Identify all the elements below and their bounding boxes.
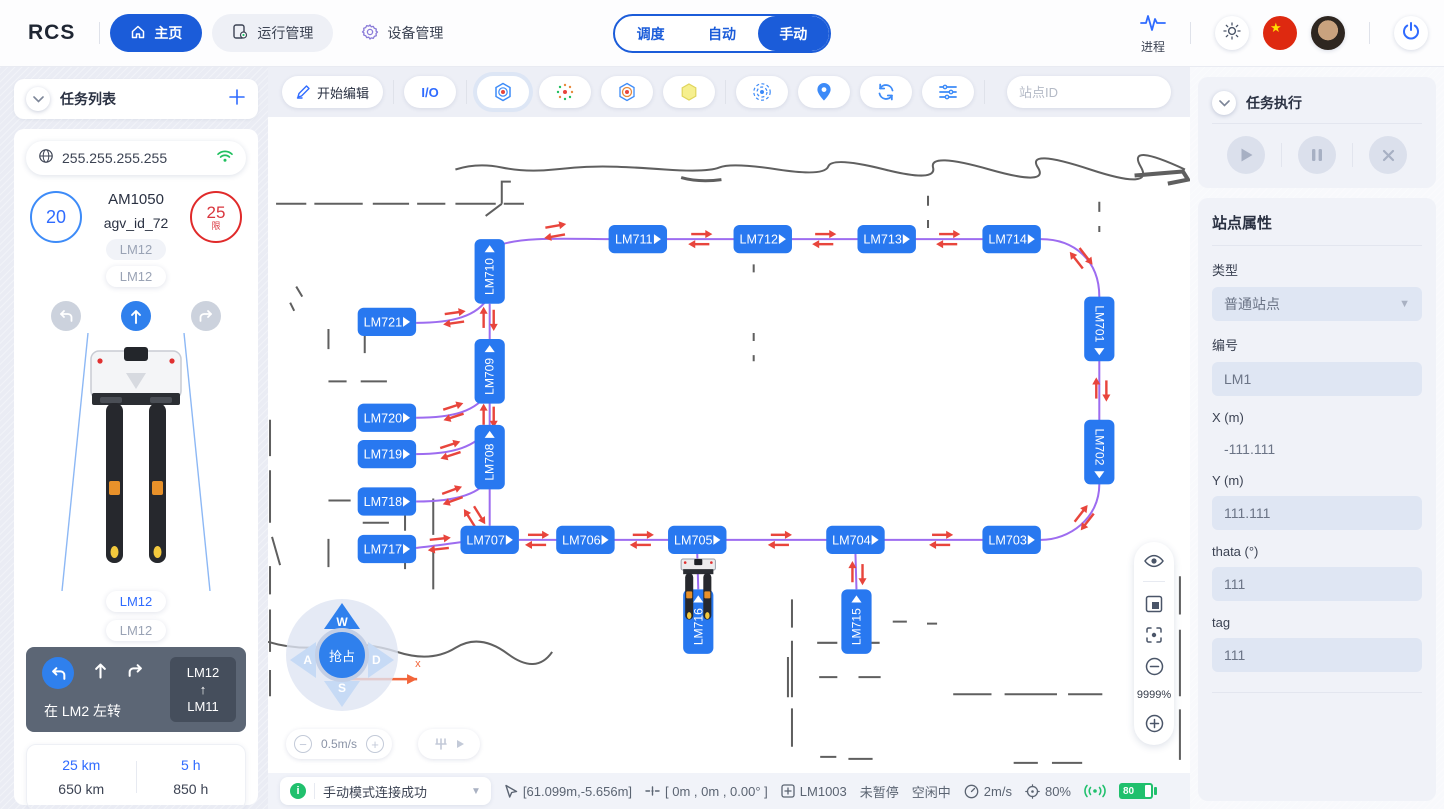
- speed-limit-gauge: 25 限: [190, 191, 242, 243]
- svg-text:LM721: LM721: [364, 315, 402, 329]
- path-direction-arrow-pair: [1067, 243, 1096, 273]
- svg-text:LM709: LM709: [483, 358, 497, 395]
- station-id-input[interactable]: LM1: [1212, 362, 1422, 396]
- field-label-y: Y (m): [1212, 473, 1422, 488]
- path-direction-arrow-pair: [441, 307, 467, 328]
- battery-indicator: 80: [1119, 783, 1153, 799]
- brand-logo: RCS: [28, 21, 75, 45]
- svg-text:LM719: LM719: [364, 448, 402, 462]
- locate-button[interactable]: [798, 76, 850, 108]
- map-station-node[interactable]: LM715: [841, 589, 871, 654]
- svg-text:LM711: LM711: [615, 233, 653, 247]
- station-theta-input[interactable]: 111: [1212, 567, 1422, 601]
- process-label: 进程: [1141, 38, 1165, 55]
- lidar-view-button[interactable]: [736, 76, 788, 108]
- plus-square-icon: [781, 784, 795, 798]
- station-nodes: LM710LM711LM712LM713LM714LM721LM709LM720…: [358, 225, 1115, 654]
- center-target-button[interactable]: [1145, 626, 1163, 644]
- connection-message[interactable]: i 手动模式连接成功 ▼: [280, 777, 491, 805]
- svg-text:LM704: LM704: [832, 533, 870, 547]
- svg-text:LM717: LM717: [364, 542, 402, 556]
- task-sidebar: 任务列表 255.255.255.255 20 AM1050 agv_id_72: [0, 67, 268, 809]
- map-station-node[interactable]: LM710: [475, 239, 505, 304]
- field-label-x: X (m): [1212, 410, 1422, 425]
- map-station-node[interactable]: LM709: [475, 339, 505, 404]
- speedometer-icon: [964, 784, 979, 799]
- svg-text:LM706: LM706: [562, 533, 600, 547]
- chevron-down-icon[interactable]: [1212, 91, 1236, 115]
- io-button[interactable]: I/O: [404, 76, 456, 108]
- map-toolbar: 开始编辑 I/O: [268, 67, 1190, 117]
- path-direction-arrow-pair: [848, 561, 866, 585]
- signal-icon: [1084, 784, 1106, 798]
- total-distance: 650 km: [27, 781, 136, 797]
- localization-quality: 80%: [1025, 784, 1071, 799]
- robot-pose: [ 0m , 0m , 0.00° ]: [645, 784, 768, 799]
- route-segment: LM12 ↑ LM11: [170, 657, 236, 722]
- task-execution-title: 任务执行: [1246, 93, 1302, 113]
- trip-distance: 25 km: [27, 757, 136, 773]
- path-direction-arrow-pair: [436, 438, 465, 463]
- power-icon: [1401, 21, 1421, 46]
- speed-gauge: 20: [30, 191, 82, 243]
- odometer-card: 25 km 650 km 5 h 850 h: [26, 744, 246, 809]
- map-station-node[interactable]: LM719: [358, 440, 416, 468]
- mode-auto[interactable]: 自动: [686, 16, 757, 51]
- home-icon: [130, 24, 146, 43]
- map-station-node[interactable]: LM712: [734, 225, 792, 253]
- svg-text:LM718: LM718: [364, 495, 402, 509]
- connection-message-text: 手动模式连接成功: [323, 782, 463, 801]
- layer-zones-button[interactable]: [601, 76, 653, 108]
- star-icon: ★: [1270, 20, 1282, 36]
- station-properties-title: 站点属性: [1212, 212, 1422, 233]
- map-station-node[interactable]: LM705: [668, 526, 726, 554]
- nav-item-label: 主页: [154, 23, 182, 43]
- signal-indicator: [1084, 784, 1106, 798]
- process-button[interactable]: 进程: [1140, 12, 1166, 55]
- pencil-icon: [296, 85, 310, 99]
- joystick-up-key[interactable]: W: [324, 603, 360, 629]
- station-x-value: -111.111: [1212, 433, 1422, 459]
- language-flag-button[interactable]: ★: [1263, 16, 1297, 50]
- task-list-header: 任务列表: [14, 79, 258, 119]
- agv-id: agv_id_72: [104, 215, 169, 231]
- pointer-icon: [504, 784, 518, 798]
- hexagon-rings-icon: [616, 81, 638, 103]
- task-pause-button[interactable]: [1298, 136, 1336, 174]
- station-chip: LM12: [106, 620, 167, 641]
- sun-icon: [1223, 22, 1241, 45]
- turn-right-button[interactable]: [191, 301, 221, 331]
- map-view-palette: 9999%: [1134, 542, 1174, 745]
- play-icon: [1239, 147, 1254, 163]
- go-straight-button[interactable]: [121, 301, 151, 331]
- joystick-right-key[interactable]: D: [368, 642, 394, 678]
- map-station-node[interactable]: LM702: [1084, 420, 1114, 485]
- svg-text:LM703: LM703: [988, 533, 1026, 547]
- crosshair-icon: [645, 784, 660, 798]
- map-station-node[interactable]: LM706: [556, 526, 614, 554]
- map-station-node[interactable]: LM720: [358, 404, 416, 432]
- waveform-icon: [1140, 12, 1166, 37]
- theme-toggle-button[interactable]: [1215, 16, 1249, 50]
- divider: [1190, 22, 1191, 44]
- manual-speed-stepper: − 0.5m/s +: [286, 729, 392, 759]
- agv-ip-row[interactable]: 255.255.255.255: [26, 141, 246, 175]
- svg-text:LM715: LM715: [850, 608, 864, 645]
- straight-icon[interactable]: [94, 662, 107, 684]
- map-station-node[interactable]: LM721: [358, 308, 416, 336]
- agv-meta: AM1050 agv_id_72 LM12: [104, 191, 169, 260]
- path-direction-arrow-pair: [1092, 377, 1110, 401]
- visibility-button[interactable]: [1144, 554, 1164, 568]
- task-play-button[interactable]: [1227, 136, 1265, 174]
- x-axis-label: x: [415, 658, 421, 670]
- map-station-node[interactable]: LM703: [982, 526, 1040, 554]
- station-properties-panel: 站点属性 类型 普通站点 ▼ 编号 LM1 X (m) -111.111 Y (…: [1198, 198, 1436, 801]
- map-station-node[interactable]: LM718: [358, 487, 416, 515]
- pause-state: 未暂停: [860, 782, 899, 801]
- map-station-node[interactable]: LM711: [609, 225, 667, 253]
- direction-buttons: [26, 301, 246, 331]
- svg-text:LM705: LM705: [674, 533, 712, 547]
- current-station-chip: LM12: [106, 591, 167, 612]
- agv-card: 255.255.255.255 20 AM1050 agv_id_72 LM12…: [14, 129, 258, 805]
- map-station-node[interactable]: LM714: [982, 225, 1040, 253]
- field-label-tag: tag: [1212, 615, 1422, 630]
- monitor-gear-icon: [232, 23, 249, 43]
- forklift-view: [26, 333, 246, 591]
- nav-item-label: 设备管理: [387, 23, 443, 43]
- play-icon: [456, 739, 465, 749]
- agv-ip-address: 255.255.255.255: [62, 150, 208, 166]
- svg-text:LM701: LM701: [1092, 305, 1106, 342]
- user-avatar[interactable]: [1311, 16, 1345, 50]
- refresh-icon: [876, 83, 896, 101]
- yellow-hexagon-icon: [678, 81, 700, 103]
- info-icon: i: [290, 783, 306, 799]
- map-canvas[interactable]: LM710LM711LM712LM713LM714LM721LM709LM720…: [268, 117, 1190, 773]
- svg-text:LM714: LM714: [988, 233, 1026, 247]
- field-label-theta: thata (°): [1212, 544, 1422, 559]
- gear-icon: [361, 23, 379, 44]
- fork-icon: [434, 737, 448, 751]
- task-list-title: 任务列表: [60, 89, 116, 109]
- map-station-node[interactable]: LM707: [460, 526, 518, 554]
- mode-manual[interactable]: 手动: [758, 16, 829, 51]
- station-search-input[interactable]: [1019, 85, 1195, 100]
- field-label-type: 类型: [1212, 260, 1422, 279]
- speed-decrease-button[interactable]: −: [294, 735, 312, 753]
- turn-left-button[interactable]: [51, 301, 81, 331]
- task-cancel-button[interactable]: [1369, 136, 1407, 174]
- right-sidebar: 任务执行 站点属性 类型 普通站点: [1190, 67, 1444, 809]
- mode-dispatch[interactable]: 调度: [615, 16, 686, 51]
- scatter-points-icon: [554, 81, 576, 103]
- close-icon: [1382, 149, 1395, 162]
- station-tag-input[interactable]: 111: [1212, 638, 1422, 672]
- chevron-down-icon[interactable]: ▼: [471, 786, 481, 797]
- power-button[interactable]: [1394, 16, 1428, 50]
- idle-state: 空闲中: [912, 782, 951, 801]
- station-chip: LM12: [106, 266, 167, 287]
- map-station-node[interactable]: LM704: [826, 526, 884, 554]
- trip-hours: 5 h: [137, 757, 246, 773]
- nav-item-operations[interactable]: 运行管理: [212, 14, 333, 52]
- station-type-select[interactable]: 普通站点 ▼: [1212, 287, 1422, 321]
- map-station-node[interactable]: LM717: [358, 535, 416, 563]
- layer-points-button[interactable]: [539, 76, 591, 108]
- pause-icon: [1311, 148, 1323, 162]
- field-label-id: 编号: [1212, 335, 1422, 354]
- hexagon-node-icon: [492, 81, 514, 103]
- fit-view-button[interactable]: [1145, 595, 1163, 613]
- manual-speed-value: 0.5m/s: [321, 737, 357, 751]
- agv-model: AM1050: [104, 191, 169, 208]
- add-task-button[interactable]: [228, 87, 246, 111]
- status-bar: i 手动模式连接成功 ▼ [61.099m,-5.656m] [ 0m , 0m…: [268, 773, 1190, 809]
- chevron-down-icon[interactable]: [26, 87, 50, 111]
- slam-map: LM710LM711LM712LM713LM714LM721LM709LM720…: [268, 117, 1190, 773]
- globe-icon: [38, 148, 54, 169]
- location-pin-icon: [815, 82, 833, 102]
- svg-text:LM712: LM712: [739, 233, 777, 247]
- map-station-node[interactable]: LM708: [475, 425, 505, 490]
- nav-instruction: 在 LM2 左转: [38, 701, 162, 721]
- zoom-out-button[interactable]: [1145, 657, 1164, 676]
- speed-readout: 2m/s: [964, 784, 1012, 799]
- radar-icon: [751, 81, 773, 103]
- cursor-coords: [61.099m,-5.656m]: [504, 784, 632, 799]
- mode-switcher: 调度 自动 手动: [613, 14, 831, 53]
- svg-text:LM720: LM720: [364, 411, 402, 425]
- svg-text:LM708: LM708: [483, 443, 497, 480]
- svg-text:LM707: LM707: [466, 533, 504, 547]
- forklift-image: [26, 333, 246, 591]
- current-station: LM1003: [781, 784, 847, 799]
- top-navbar: RCS 主页 运行管理 设备管理 调度 自动 手动 进程: [0, 0, 1444, 67]
- divider: [99, 22, 100, 44]
- joystick-down-key[interactable]: S: [324, 681, 360, 707]
- turn-left-active-button[interactable]: [42, 657, 74, 689]
- wifi-icon: [216, 149, 234, 168]
- station-search: [1007, 76, 1171, 108]
- filters-button[interactable]: [922, 76, 974, 108]
- layer-areas-button[interactable]: [663, 76, 715, 108]
- speed-increase-button[interactable]: +: [366, 735, 384, 753]
- station-chip: LM12: [106, 239, 167, 260]
- task-execution-panel: 任务执行: [1198, 77, 1436, 188]
- target-icon: [1025, 784, 1040, 799]
- chevron-down-icon: ▼: [1399, 298, 1410, 310]
- station-y-input[interactable]: 111.111: [1212, 496, 1422, 530]
- joystick-left-key[interactable]: A: [290, 642, 316, 678]
- map-station-node[interactable]: LM713: [857, 225, 915, 253]
- agv-gauges: 20 AM1050 agv_id_72 LM12 25 限: [26, 191, 246, 260]
- divider: [1369, 22, 1370, 44]
- fork-action-button[interactable]: [418, 729, 480, 759]
- start-edit-button[interactable]: 开始编辑: [282, 76, 383, 108]
- svg-text:LM710: LM710: [483, 258, 497, 295]
- map-station-node[interactable]: LM701: [1084, 297, 1114, 362]
- nav-item-home[interactable]: 主页: [110, 14, 202, 52]
- zoom-percent: 9999%: [1137, 689, 1171, 701]
- seize-control-button[interactable]: 抢占: [315, 628, 369, 682]
- zoom-in-button[interactable]: [1145, 714, 1164, 733]
- nav-item-label: 运行管理: [257, 23, 313, 43]
- layer-stations-button[interactable]: [477, 76, 529, 108]
- svg-text:LM702: LM702: [1092, 429, 1106, 466]
- battery-percent: 80: [1119, 786, 1134, 797]
- nav-item-devices[interactable]: 设备管理: [341, 14, 463, 52]
- total-hours: 850 h: [137, 781, 246, 797]
- manual-joystick: W A S D 抢占: [286, 599, 398, 711]
- navigation-card: 在 LM2 左转 LM12 ↑ LM11: [26, 647, 246, 732]
- sliders-icon: [938, 83, 958, 101]
- svg-text:LM716: LM716: [691, 608, 705, 645]
- svg-text:LM713: LM713: [863, 233, 901, 247]
- refresh-button[interactable]: [860, 76, 912, 108]
- turn-right-icon[interactable]: [127, 663, 144, 683]
